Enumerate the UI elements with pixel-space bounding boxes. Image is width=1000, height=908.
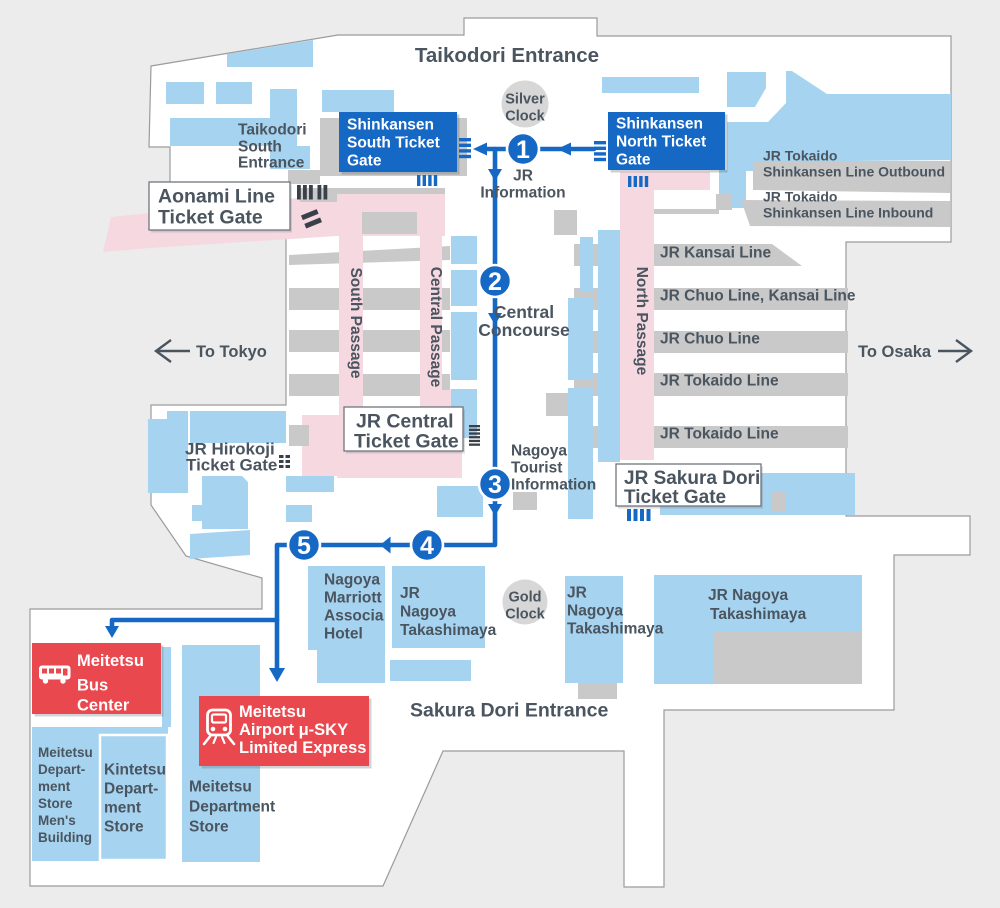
svg-text:JR Central: JR Central (356, 411, 454, 433)
svg-text:Clock: Clock (505, 109, 545, 125)
svg-text:Shinkansen Line Outbound: Shinkansen Line Outbound (763, 164, 945, 180)
svg-text:Central: Central (494, 302, 554, 322)
svg-text:Ticket Gate: Ticket Gate (158, 207, 263, 229)
svg-text:Associa: Associa (324, 608, 384, 625)
svg-text:Kintetsu: Kintetsu (104, 762, 166, 779)
svg-text:Nagoya: Nagoya (567, 603, 623, 620)
svg-text:JR Sakura Dori: JR Sakura Dori (624, 468, 760, 489)
svg-text:Taikodori Entrance: Taikodori Entrance (415, 44, 599, 67)
svg-text:JR Chuo Line, Kansai Line: JR Chuo Line, Kansai Line (660, 288, 856, 305)
svg-text:JR Kansai Line: JR Kansai Line (660, 245, 771, 262)
svg-text:Shinkansen: Shinkansen (616, 116, 703, 133)
svg-text:South: South (238, 139, 282, 156)
svg-text:4: 4 (420, 532, 434, 560)
svg-text:5: 5 (297, 532, 311, 560)
svg-text:Men's: Men's (38, 813, 76, 828)
svg-text:JR: JR (567, 585, 587, 602)
svg-text:Ticket Gate: Ticket Gate (186, 456, 277, 475)
svg-text:JR Tokaido: JR Tokaido (763, 148, 837, 164)
svg-text:Hotel: Hotel (324, 626, 363, 643)
svg-text:2: 2 (488, 268, 502, 296)
svg-text:To Tokyo: To Tokyo (196, 343, 267, 361)
svg-text:South Passage: South Passage (347, 267, 364, 378)
svg-text:Takashimaya: Takashimaya (567, 621, 664, 638)
svg-text:1: 1 (516, 136, 530, 164)
svg-text:Department: Department (189, 799, 275, 816)
svg-text:Gate: Gate (616, 152, 651, 169)
svg-text:Nagoya: Nagoya (511, 443, 567, 460)
svg-text:Building: Building (38, 830, 92, 845)
svg-text:To Osaka: To Osaka (858, 343, 932, 361)
svg-text:ment: ment (38, 779, 71, 794)
svg-text:Central Passage: Central Passage (427, 267, 444, 388)
svg-text:Concourse: Concourse (478, 320, 570, 340)
svg-text:Ticket Gate: Ticket Gate (624, 487, 726, 508)
svg-text:Shinkansen: Shinkansen (347, 117, 434, 134)
svg-text:Information: Information (480, 185, 565, 202)
svg-text:Meitetsu: Meitetsu (77, 652, 144, 670)
svg-text:Information: Information (511, 477, 596, 494)
svg-text:JR Nagoya: JR Nagoya (708, 587, 788, 604)
svg-text:Takashimaya: Takashimaya (710, 606, 807, 623)
svg-text:Meitetsu: Meitetsu (38, 745, 93, 760)
svg-text:Depart-: Depart- (104, 781, 158, 798)
svg-text:Tourist: Tourist (511, 460, 562, 477)
svg-text:Store: Store (104, 819, 144, 836)
svg-text:Silver: Silver (505, 92, 545, 108)
svg-text:3: 3 (488, 471, 502, 499)
svg-text:ment: ment (104, 800, 141, 817)
svg-text:North Passage: North Passage (633, 267, 650, 376)
svg-text:Meitetsu: Meitetsu (239, 703, 306, 721)
svg-text:Airport μ-SKY: Airport μ-SKY (239, 721, 348, 739)
svg-text:Marriott: Marriott (324, 590, 382, 607)
svg-text:Gold: Gold (508, 590, 541, 606)
svg-text:JR Tokaido: JR Tokaido (763, 189, 837, 205)
svg-text:JR: JR (513, 168, 533, 185)
svg-text:JR: JR (400, 585, 420, 602)
svg-text:Takashimaya: Takashimaya (400, 622, 497, 639)
svg-text:Ticket Gate: Ticket Gate (354, 431, 459, 453)
svg-text:Clock: Clock (505, 607, 545, 623)
svg-text:South Ticket: South Ticket (347, 135, 440, 152)
svg-text:Bus: Bus (77, 677, 108, 695)
svg-text:Store: Store (38, 796, 73, 811)
svg-text:Depart-: Depart- (38, 762, 85, 777)
svg-text:Aonami Line: Aonami Line (158, 186, 275, 208)
svg-text:JR Tokaido Line: JR Tokaido Line (660, 373, 779, 390)
svg-text:Limited Express: Limited Express (239, 739, 366, 757)
svg-text:North Ticket: North Ticket (616, 134, 706, 151)
svg-text:Taikodori: Taikodori (238, 122, 307, 139)
svg-text:Meitetsu: Meitetsu (189, 779, 252, 796)
svg-text:JR Chuo Line: JR Chuo Line (660, 331, 760, 348)
svg-text:Shinkansen Line Inbound: Shinkansen Line Inbound (763, 205, 933, 221)
svg-text:Nagoya: Nagoya (324, 572, 380, 589)
svg-text:Center: Center (77, 697, 130, 715)
svg-text:Gate: Gate (347, 153, 382, 170)
svg-text:Entrance: Entrance (238, 155, 305, 172)
svg-text:Nagoya: Nagoya (400, 604, 456, 621)
svg-text:Sakura Dori Entrance: Sakura Dori Entrance (410, 700, 608, 722)
svg-text:JR Tokaido Line: JR Tokaido Line (660, 426, 779, 443)
svg-text:Store: Store (189, 819, 229, 836)
